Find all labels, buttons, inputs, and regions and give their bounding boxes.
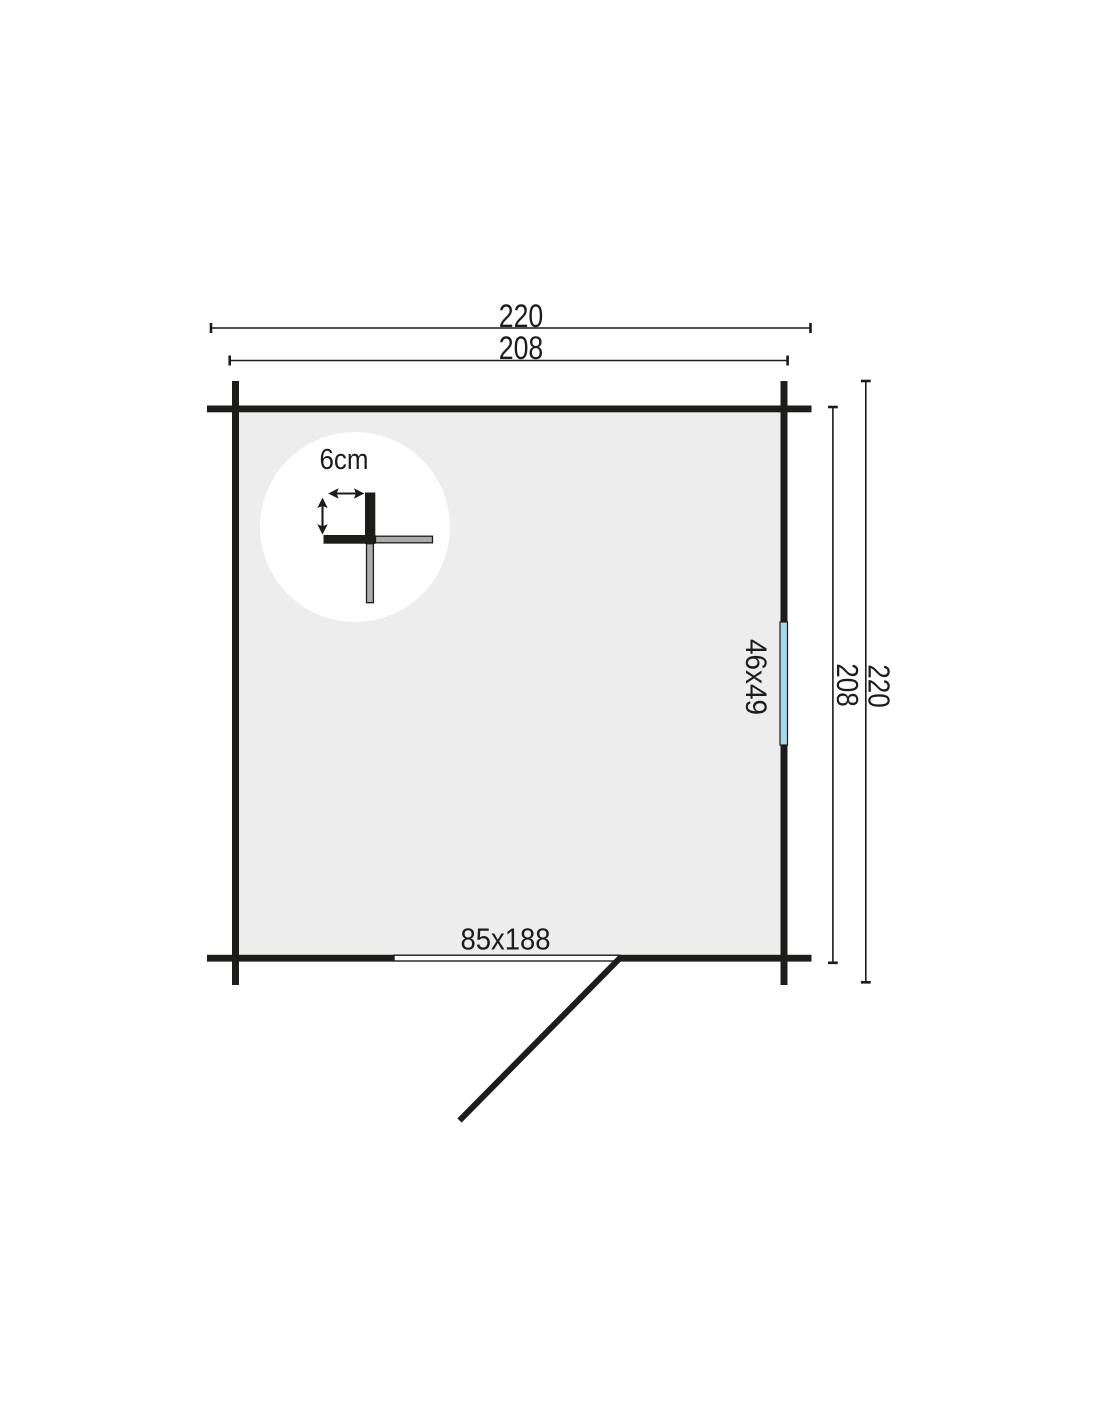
svg-text:208: 208 — [499, 330, 544, 366]
svg-text:46x49: 46x49 — [739, 639, 772, 715]
svg-text:208: 208 — [830, 663, 865, 707]
svg-text:85x188: 85x188 — [461, 922, 551, 957]
svg-text:220: 220 — [499, 298, 544, 334]
svg-text:220: 220 — [862, 664, 897, 708]
svg-text:6cm: 6cm — [320, 444, 369, 476]
